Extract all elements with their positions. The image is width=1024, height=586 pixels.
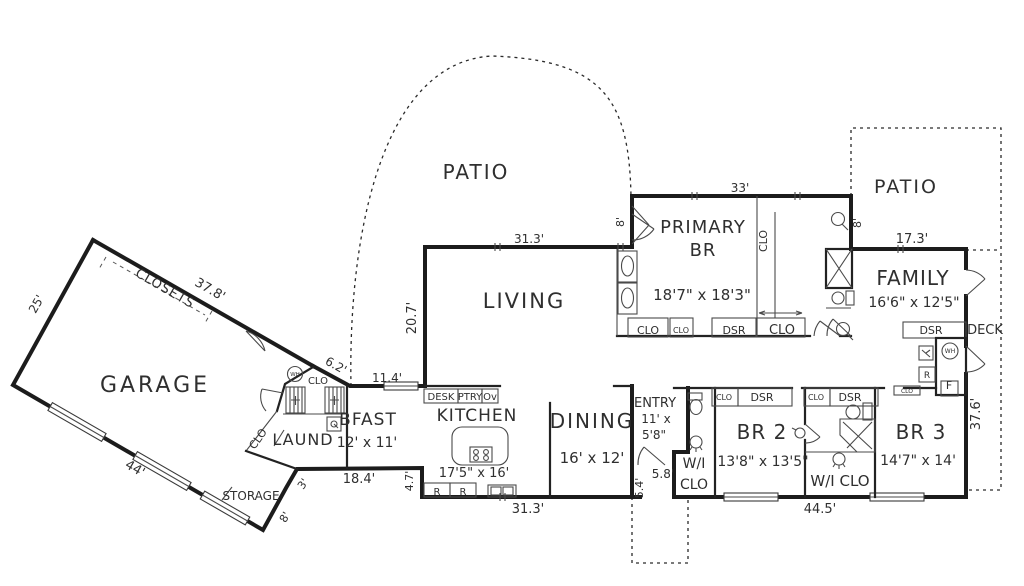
br2-dims-label: 13'8" x 13'5"	[717, 454, 808, 470]
dim-25-label: 25'	[26, 293, 47, 316]
garage-room-label: GARAGE	[100, 373, 210, 398]
dim-17-3-label: 17.3'	[896, 232, 929, 247]
br3-dims-label: 14'7" x 14'	[880, 453, 956, 469]
dim-18-4-label: 18.4'	[343, 472, 376, 487]
dsr-br3-label: DSR	[838, 391, 861, 404]
dining-room-label: DINING	[550, 409, 635, 433]
water-heater-garage-label: WH	[290, 372, 300, 378]
dsr-br2-label: DSR	[750, 391, 773, 404]
deck-area-label: DECK	[967, 323, 1003, 338]
dim-20-7-label: 20.7'	[405, 302, 420, 335]
kitchen-dims-label: 17'5" x 16'	[439, 466, 509, 481]
laundry-room-label: LAUND	[272, 430, 333, 449]
wi-clo-br3-label: W/I CLO	[810, 472, 869, 490]
bfast-dims-label: 12' x 11'	[337, 435, 398, 451]
family-room-label: FAMILY	[876, 266, 949, 290]
closets-label: CLOSETS	[133, 266, 197, 312]
water-heater-family-label: WH	[945, 348, 955, 355]
clo-primary-3-label: CLO	[769, 323, 795, 338]
family-dims-label: 16'6" x 12'5"	[868, 295, 959, 311]
dim-8-primary-left-label: 8'	[614, 217, 627, 227]
clo-laundry-label: CLO	[246, 426, 270, 452]
fridge-2-label: R	[460, 487, 467, 498]
hall-bath-shower	[840, 419, 875, 452]
pantry-cabinet-label: PTRY	[458, 392, 483, 403]
powder-toilet	[688, 393, 702, 415]
entry-dims-1-label: 11' x	[641, 412, 670, 426]
furnace-label: F	[946, 379, 952, 392]
desk-cabinet-label: DESK	[428, 392, 455, 403]
dim-37-6-label: 37.6'	[969, 398, 984, 431]
floor-plan-canvas: GARAGEPATIOPATIOLIVINGPRIMARYBR18'7" x 1…	[0, 0, 1024, 586]
living-room-label: LIVING	[483, 289, 565, 313]
dsr-family-label: DSR	[919, 324, 942, 337]
primary-toilet	[832, 291, 854, 305]
dim-5-4-label: 5.4'	[633, 478, 646, 499]
primary-vanity	[618, 251, 637, 314]
primary-br-line1-label: PRIMARY	[660, 217, 746, 238]
patio-right-room-label: PATIO	[874, 176, 938, 198]
storage-room-label: STORAGE	[222, 489, 279, 503]
fridge-3-label: R	[924, 371, 930, 381]
wi-clo-entry-1-label: W/I	[683, 456, 706, 472]
dim-8-primary-right-label: 8'	[851, 218, 864, 228]
clo-br2-label: CLO	[716, 393, 732, 402]
washer-dryer	[286, 387, 344, 413]
dining-dims-label: 16' x 12'	[560, 449, 625, 467]
dim-31-3-bottom-label: 31.3'	[512, 502, 545, 517]
clo-family-tiny-label: CLO	[901, 388, 913, 395]
wi-clo-entry-2-label: CLO	[680, 477, 708, 493]
dim-4-7-label: 4.7'	[403, 471, 416, 492]
entry-room-label: ENTRY	[634, 396, 676, 411]
dim-31-3-top-label: 31.3'	[514, 232, 544, 246]
dim-8-garage-label: 8'	[277, 510, 293, 525]
clo-garage-nook-label: CLO	[308, 376, 328, 387]
clo-br3-label: CLO	[808, 393, 824, 402]
floor-plan-page: GARAGEPATIOPATIOLIVINGPRIMARYBR18'7" x 1…	[0, 0, 1024, 586]
clo-primary-1-label: CLO	[637, 324, 659, 337]
patio-top-room-label: PATIO	[443, 160, 510, 184]
primary-br-line2-label: BR	[690, 240, 717, 261]
fridge-1-label: R	[434, 487, 441, 498]
primary-shower	[826, 249, 852, 288]
dim-33-label: 33'	[731, 181, 750, 195]
kitchen-island	[452, 427, 508, 465]
primary-br-dims-label: 18'7" x 18'3"	[653, 286, 751, 304]
clo-primary-vertical-label: CLO	[757, 230, 770, 252]
kitchen-room-label: KITCHEN	[437, 406, 518, 426]
oven-cabinet-label: Ov	[483, 392, 497, 403]
clo-primary-2-label: CLO	[673, 326, 689, 335]
dim-5-8-label: 5.8'	[652, 467, 674, 481]
br3-room-label: BR 3	[896, 420, 947, 444]
bfast-room-label: BFAST	[339, 410, 397, 430]
dim-11-4-label: 11.4'	[372, 371, 402, 385]
br2-room-label: BR 2	[737, 420, 788, 444]
dsr-primary-label: DSR	[722, 324, 745, 337]
dim-3-label: 3'	[295, 476, 311, 492]
entry-dims-2-label: 5'8"	[642, 428, 666, 442]
dim-44-5-label: 44.5'	[804, 502, 837, 517]
